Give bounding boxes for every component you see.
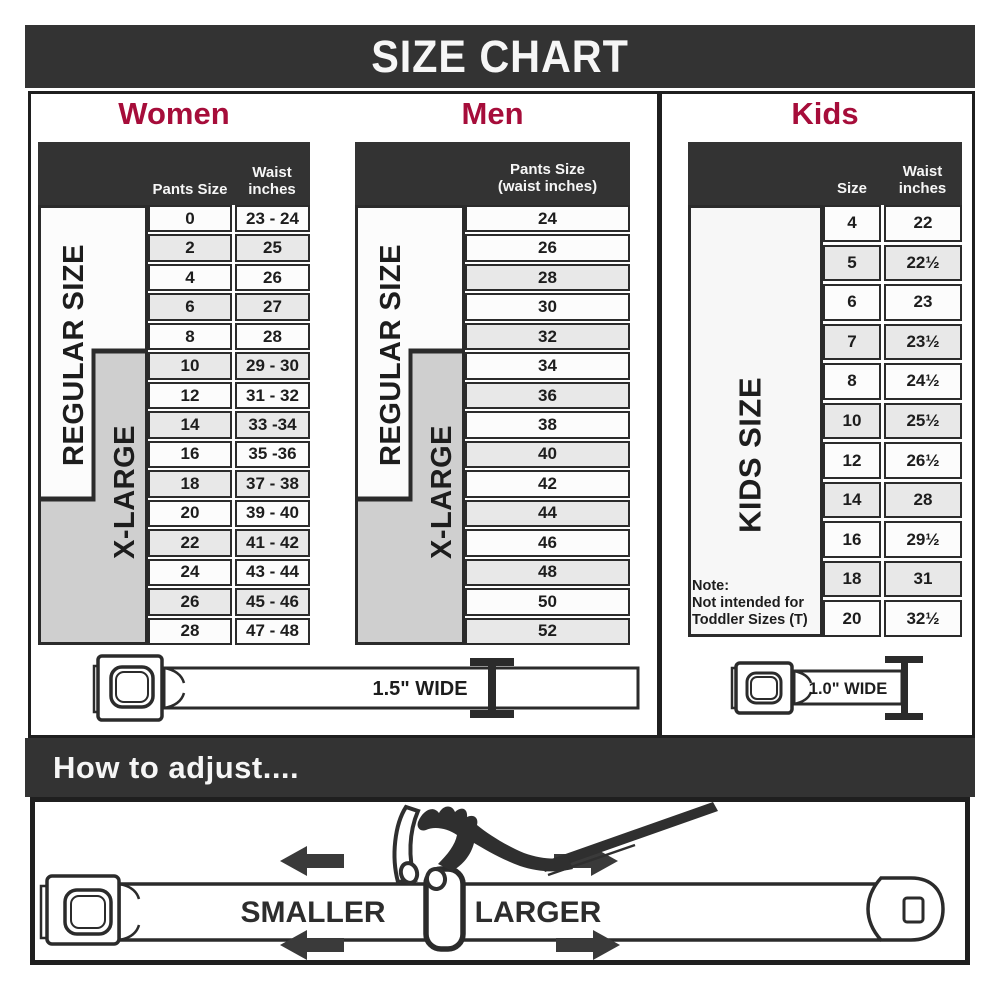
cell-size: 5 <box>823 245 881 282</box>
cell-size: 16 <box>823 521 881 558</box>
women-size-table: Pants Size Waist inches REGULAR SIZE X-L… <box>38 142 310 645</box>
size-chart-page: SIZE CHART Women Men Kids Pants Size Wai… <box>0 0 1000 1000</box>
cell-size: 10 <box>823 403 881 440</box>
kids-header-waist: Waist inches <box>883 163 962 198</box>
cell-waist: 25½ <box>884 403 962 440</box>
how-to-adjust-title: How to adjust.... <box>25 750 299 786</box>
cell-size: 34 <box>465 352 630 379</box>
cell-size: 26 <box>148 588 232 615</box>
cell-waist: 37 - 38 <box>235 470 310 497</box>
cell-waist: 23 <box>884 284 962 321</box>
women-heading: Women <box>38 96 310 132</box>
kids-heading: Kids <box>688 96 962 132</box>
cell-size: 38 <box>465 411 630 438</box>
cell-size: 52 <box>465 618 630 645</box>
women-header-pants-size: Pants Size <box>148 181 232 198</box>
cell-waist: 35 -36 <box>235 441 310 468</box>
cell-size: 18 <box>823 561 881 598</box>
cell-size: 12 <box>148 382 232 409</box>
cell-size: 28 <box>465 264 630 291</box>
cell-waist: 47 - 48 <box>235 618 310 645</box>
cell-size: 48 <box>465 559 630 586</box>
men-heading: Men <box>355 96 630 132</box>
how-to-adjust-band: How to adjust.... <box>25 738 975 797</box>
larger-label: LARGER <box>475 896 602 929</box>
men-header-pants-size: Pants Size (waist inches) <box>465 161 630 196</box>
arrow-left-icon <box>280 846 344 876</box>
cell-size: 32 <box>465 323 630 350</box>
cell-waist: 29 - 30 <box>235 352 310 379</box>
men-xlarge-label: X-LARGE <box>426 425 458 559</box>
cell-waist: 45 - 46 <box>235 588 310 615</box>
cell-waist: 41 - 42 <box>235 529 310 556</box>
adult-belt-width-label: 1.5" WIDE <box>372 678 467 700</box>
smaller-label: SMALLER <box>241 896 386 929</box>
cell-size: 10 <box>148 352 232 379</box>
women-table-rows: 023 - 242254266278281029 - 301231 - 3214… <box>148 205 310 645</box>
cell-size: 4 <box>823 205 881 242</box>
cell-waist: 28 <box>884 482 962 519</box>
title-band: SIZE CHART <box>25 25 975 88</box>
cell-waist: 27 <box>235 293 310 320</box>
cell-size: 28 <box>148 618 232 645</box>
cell-size: 6 <box>823 284 881 321</box>
men-table-header: Pants Size (waist inches) <box>355 142 630 205</box>
cell-size: 7 <box>823 324 881 361</box>
cell-waist: 39 - 40 <box>235 500 310 527</box>
cell-size: 14 <box>823 482 881 519</box>
tongue-slot <box>904 898 923 922</box>
cell-waist: 28 <box>235 323 310 350</box>
kids-size-label: KIDS SIZE <box>733 377 768 533</box>
cell-waist: 22 <box>884 205 962 242</box>
cell-waist: 31 - 32 <box>235 382 310 409</box>
cell-size: 18 <box>148 470 232 497</box>
cell-size: 4 <box>148 264 232 291</box>
cell-size: 46 <box>465 529 630 556</box>
cell-size: 44 <box>465 500 630 527</box>
women-header-waist: Waist inches <box>234 164 310 199</box>
adult-belt-illustration: 1.5" WIDE <box>90 650 650 728</box>
cell-waist: 32½ <box>884 600 962 637</box>
women-table-header: Pants Size Waist inches <box>38 142 310 205</box>
cell-waist: 25 <box>235 234 310 261</box>
cell-waist: 26½ <box>884 442 962 479</box>
cell-waist: 26 <box>235 264 310 291</box>
kids-size-table: Size Waist inches KIDS SIZE Note: Not in… <box>688 142 962 637</box>
cell-size: 42 <box>465 470 630 497</box>
cell-size: 0 <box>148 205 232 232</box>
cell-size: 8 <box>148 323 232 350</box>
page-title: SIZE CHART <box>371 31 629 83</box>
cell-waist: 33 -34 <box>235 411 310 438</box>
fingertip <box>425 868 446 891</box>
men-size-table: Pants Size (waist inches) REGULAR SIZE X… <box>355 142 630 645</box>
cell-size: 14 <box>148 411 232 438</box>
cell-size: 6 <box>148 293 232 320</box>
kids-belt-width-label: 1.0" WIDE <box>809 680 887 698</box>
cell-size: 30 <box>465 293 630 320</box>
cell-size: 40 <box>465 441 630 468</box>
cell-size: 2 <box>148 234 232 261</box>
cell-size: 16 <box>148 441 232 468</box>
kids-size-region: KIDS SIZE <box>688 205 823 637</box>
men-table-rows: 242628303234363840424446485052 <box>465 205 630 645</box>
panel-divider <box>657 91 662 738</box>
cell-size: 8 <box>823 363 881 400</box>
women-xlarge-label: X-LARGE <box>109 425 141 559</box>
kids-table-rows: 422522½623723½824½1025½1226½14281629½183… <box>823 205 962 637</box>
adjust-diagram: SMALLER LARGER <box>35 802 965 960</box>
men-regular-size-label: REGULAR SIZE <box>375 244 407 466</box>
cell-waist: 31 <box>884 561 962 598</box>
kids-header-size: Size <box>823 180 881 197</box>
cell-size: 50 <box>465 588 630 615</box>
cell-waist: 24½ <box>884 363 962 400</box>
women-regular-size-label: REGULAR SIZE <box>58 244 90 466</box>
kids-table-header: Size Waist inches <box>688 142 962 205</box>
adjust-diagram-frame: SMALLER LARGER <box>30 797 970 965</box>
cell-size: 24 <box>465 205 630 232</box>
cell-waist: 23½ <box>884 324 962 361</box>
cell-size: 24 <box>148 559 232 586</box>
cell-waist: 29½ <box>884 521 962 558</box>
cell-waist: 43 - 44 <box>235 559 310 586</box>
cell-size: 26 <box>465 234 630 261</box>
women-size-range-labels: REGULAR SIZE X-LARGE <box>38 205 148 645</box>
cell-size: 22 <box>148 529 232 556</box>
cell-waist: 22½ <box>884 245 962 282</box>
cell-size: 36 <box>465 382 630 409</box>
kids-belt-illustration: 1.0" WIDE <box>730 650 940 726</box>
cell-waist: 23 - 24 <box>235 205 310 232</box>
kids-note: Note: Not intended for Toddler Sizes (T) <box>692 578 822 629</box>
cell-size: 20 <box>148 500 232 527</box>
cell-size: 12 <box>823 442 881 479</box>
men-size-range-labels: REGULAR SIZE X-LARGE <box>355 205 465 645</box>
hand-icon <box>418 806 573 871</box>
cell-size: 20 <box>823 600 881 637</box>
